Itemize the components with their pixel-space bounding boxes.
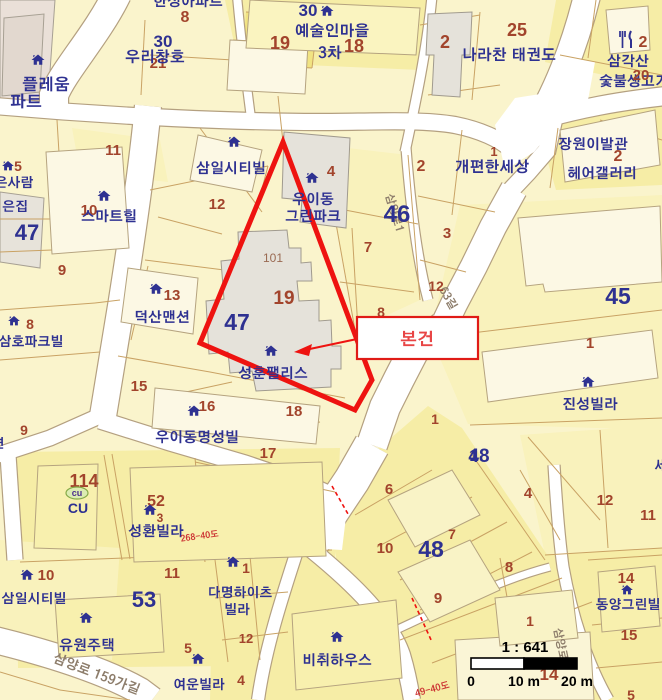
- svg-text:47: 47: [15, 220, 39, 245]
- svg-text:8: 8: [505, 559, 513, 576]
- svg-text:10 m: 10 m: [508, 673, 540, 689]
- svg-text:5: 5: [184, 640, 192, 656]
- svg-text:48: 48: [418, 536, 444, 562]
- svg-text:4: 4: [524, 485, 533, 502]
- svg-text:12: 12: [239, 631, 253, 646]
- svg-text:9: 9: [58, 262, 66, 279]
- svg-text:1 : 641: 1 : 641: [502, 639, 549, 656]
- svg-text:19: 19: [270, 33, 290, 53]
- svg-text:101: 101: [263, 251, 283, 265]
- svg-text:8: 8: [181, 9, 190, 26]
- svg-text:47: 47: [224, 309, 250, 335]
- svg-text:46: 46: [384, 201, 411, 228]
- svg-text:2: 2: [440, 32, 450, 52]
- svg-text:45: 45: [605, 283, 631, 309]
- svg-text:cu: cu: [72, 488, 83, 498]
- svg-text:9: 9: [434, 590, 442, 607]
- svg-text:3: 3: [443, 225, 451, 242]
- svg-text:7: 7: [448, 526, 456, 542]
- svg-text:11: 11: [105, 142, 121, 159]
- svg-text:4: 4: [327, 163, 336, 180]
- svg-text:0: 0: [467, 673, 475, 689]
- svg-text:12: 12: [209, 196, 226, 213]
- svg-text:12: 12: [597, 492, 614, 509]
- svg-text:20 m: 20 m: [561, 673, 593, 689]
- svg-text:30: 30: [299, 1, 318, 20]
- svg-text:53: 53: [132, 587, 156, 612]
- svg-text:13: 13: [164, 287, 181, 304]
- svg-text:12: 12: [428, 278, 444, 294]
- svg-text:1: 1: [469, 446, 478, 465]
- svg-text:9: 9: [20, 422, 28, 438]
- svg-text:20: 20: [633, 67, 650, 84]
- svg-text:18: 18: [344, 36, 364, 56]
- svg-text:1: 1: [242, 560, 250, 576]
- svg-text:17: 17: [260, 445, 277, 462]
- svg-text:CU: CU: [68, 500, 88, 516]
- svg-text:16: 16: [199, 398, 216, 415]
- svg-text:1: 1: [490, 144, 497, 159]
- svg-text:11: 11: [640, 507, 656, 524]
- svg-text:3: 3: [157, 511, 164, 525]
- svg-text:11: 11: [164, 565, 180, 582]
- svg-text:25: 25: [507, 20, 527, 40]
- svg-text:2: 2: [417, 158, 426, 175]
- svg-text:10: 10: [377, 540, 394, 557]
- svg-text:14: 14: [618, 570, 635, 587]
- svg-text:1: 1: [431, 411, 439, 427]
- svg-text:15: 15: [131, 378, 148, 395]
- svg-text:19: 19: [273, 288, 294, 309]
- svg-text:7: 7: [364, 239, 372, 256]
- svg-text:1: 1: [586, 335, 594, 352]
- svg-text:18: 18: [286, 403, 303, 420]
- svg-text:15: 15: [621, 627, 638, 644]
- svg-text:4: 4: [237, 672, 245, 688]
- svg-text:1: 1: [526, 613, 534, 629]
- svg-text:8: 8: [26, 316, 34, 332]
- svg-text:2: 2: [614, 148, 623, 165]
- svg-text:30: 30: [154, 32, 173, 51]
- svg-text:2: 2: [639, 34, 648, 51]
- svg-text:6: 6: [385, 481, 393, 498]
- svg-text:10: 10: [38, 567, 55, 584]
- svg-text:5: 5: [14, 158, 22, 174]
- svg-text:5: 5: [627, 687, 635, 700]
